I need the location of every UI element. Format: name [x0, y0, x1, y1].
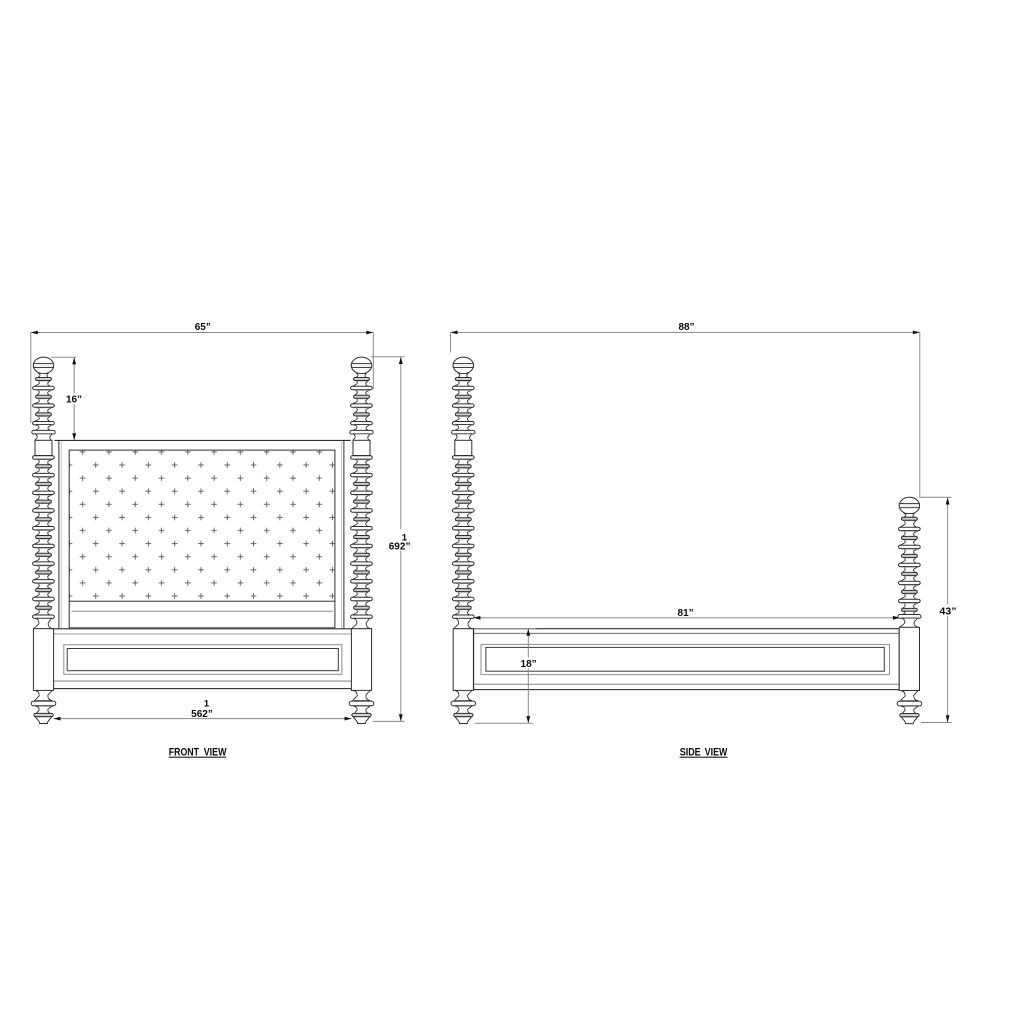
svg-text:65”: 65” [195, 322, 211, 333]
svg-text:81”: 81” [678, 608, 694, 619]
svg-text:562”: 562” [191, 709, 213, 720]
svg-text:SIDE: SIDE [680, 746, 701, 758]
svg-text:VIEW: VIEW [204, 746, 227, 758]
svg-text:88”: 88” [678, 322, 694, 333]
svg-text:FRONT: FRONT [169, 746, 200, 758]
svg-text:43”: 43” [940, 606, 957, 618]
svg-text:16”: 16” [66, 394, 82, 405]
svg-text:18”: 18” [521, 659, 537, 670]
svg-text:692”: 692” [389, 541, 411, 552]
svg-text:VIEW: VIEW [705, 746, 728, 758]
